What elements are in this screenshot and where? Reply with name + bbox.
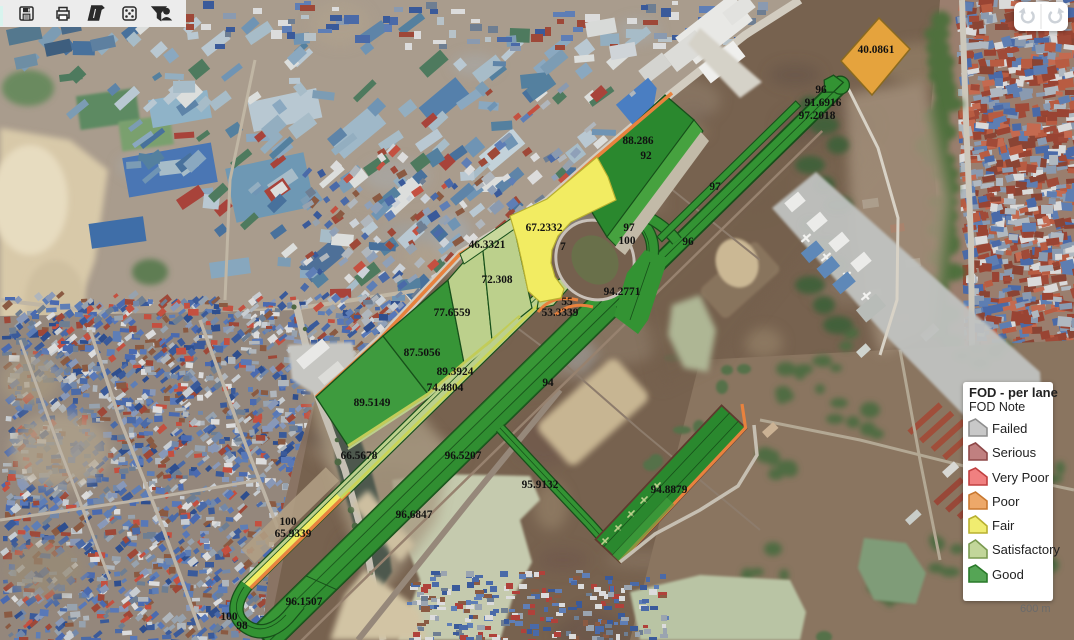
- svg-text:89.5149: 89.5149: [354, 397, 391, 409]
- svg-text:66.5678: 66.5678: [341, 450, 378, 462]
- svg-text:Fair: Fair: [992, 518, 1015, 533]
- svg-text:89.3924: 89.3924: [437, 366, 474, 378]
- svg-text:53.3339: 53.3339: [542, 307, 579, 319]
- svg-text:600 m: 600 m: [1020, 603, 1051, 615]
- svg-text:88.286: 88.286: [622, 135, 653, 147]
- svg-text:FOD Note: FOD Note: [969, 400, 1025, 414]
- svg-text:100: 100: [221, 611, 238, 623]
- svg-text:46.3321: 46.3321: [469, 239, 506, 251]
- svg-text:97: 97: [709, 181, 721, 193]
- svg-text:97.2018: 97.2018: [799, 110, 836, 122]
- svg-text:74.4804: 74.4804: [427, 382, 464, 394]
- svg-text:100: 100: [619, 235, 636, 247]
- svg-text:87.5056: 87.5056: [404, 347, 441, 359]
- svg-text:97: 97: [623, 222, 635, 234]
- svg-text:Failed: Failed: [992, 421, 1027, 436]
- svg-text:91.6916: 91.6916: [805, 97, 842, 109]
- svg-text:Satisfactory: Satisfactory: [992, 542, 1060, 557]
- svg-text:94.8879: 94.8879: [651, 484, 688, 496]
- svg-text:65.9339: 65.9339: [275, 528, 312, 540]
- svg-text:96.6847: 96.6847: [396, 509, 433, 521]
- svg-text:72.308: 72.308: [481, 274, 512, 286]
- svg-text:Poor: Poor: [992, 494, 1020, 509]
- svg-text:98: 98: [236, 620, 248, 632]
- svg-text:Serious: Serious: [992, 445, 1037, 460]
- svg-text:96.1507: 96.1507: [286, 596, 323, 608]
- svg-text:Very Poor: Very Poor: [992, 470, 1050, 485]
- svg-text:7: 7: [560, 241, 566, 253]
- svg-text:FOD - per lane: FOD - per lane: [969, 385, 1058, 400]
- svg-text:96: 96: [682, 236, 694, 248]
- svg-text:Good: Good: [992, 567, 1024, 582]
- svg-text:96: 96: [815, 84, 827, 96]
- svg-text:95.9132: 95.9132: [522, 479, 559, 491]
- svg-text:96.5207: 96.5207: [445, 450, 482, 462]
- svg-text:94.2771: 94.2771: [604, 286, 641, 298]
- svg-text:94: 94: [542, 377, 554, 389]
- svg-text:92: 92: [640, 150, 652, 162]
- svg-text:67.2332: 67.2332: [526, 222, 563, 234]
- svg-text:77.6559: 77.6559: [434, 307, 471, 319]
- svg-text:40.0861: 40.0861: [858, 44, 895, 56]
- svg-text:100: 100: [280, 516, 297, 528]
